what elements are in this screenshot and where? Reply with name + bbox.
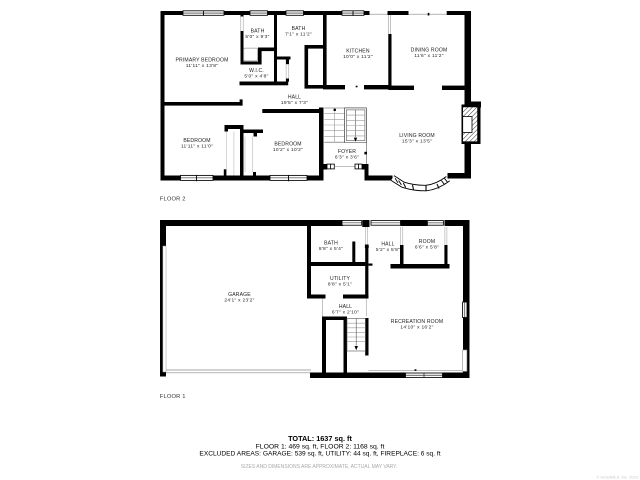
svg-text:5'0" x 4'8": 5'0" x 4'8": [244, 73, 268, 79]
svg-text:5'2" x 5'8": 5'2" x 5'8": [376, 247, 400, 253]
svg-text:11'6" x 11'2": 11'6" x 11'2": [414, 53, 444, 59]
svg-text:SIZES AND DIMENSIONS ARE APPRO: SIZES AND DIMENSIONS ARE APPROXIMATE, AC…: [241, 464, 398, 470]
svg-text:BATH: BATH: [324, 240, 338, 246]
svg-text:11'11" x 13'8": 11'11" x 13'8": [186, 63, 218, 69]
svg-text:RECREATION ROOM: RECREATION ROOM: [391, 319, 444, 325]
svg-text:PRIMARY BEDROOM: PRIMARY BEDROOM: [175, 57, 228, 63]
svg-text:BEDROOM: BEDROOM: [183, 138, 210, 144]
svg-text:KITCHEN: KITCHEN: [346, 48, 370, 54]
svg-text:TOTAL: 1637 sq. ft: TOTAL: 1637 sq. ft: [288, 434, 352, 443]
svg-text:HALL: HALL: [381, 242, 394, 248]
svg-text:15'3" x 13'5": 15'3" x 13'5": [402, 138, 432, 144]
svg-text:HALL: HALL: [339, 304, 352, 310]
svg-text:11'11" x 11'0": 11'11" x 11'0": [181, 144, 213, 150]
svg-text:8'8" x 5'1": 8'8" x 5'1": [328, 282, 352, 288]
svg-text:BEDROOM: BEDROOM: [274, 142, 301, 148]
svg-text:14'10" x 16'2": 14'10" x 16'2": [400, 325, 433, 331]
svg-text:19'5" x 7'3": 19'5" x 7'3": [281, 100, 308, 106]
svg-text:DINING ROOM: DINING ROOM: [411, 47, 448, 53]
svg-text:6'7" x 2'10": 6'7" x 2'10": [332, 310, 359, 316]
svg-text:7'1" x 11'2": 7'1" x 11'2": [285, 32, 312, 38]
svg-text:24'1" x 23'2": 24'1" x 23'2": [224, 297, 254, 303]
svg-text:BATH: BATH: [292, 26, 306, 32]
svg-text:10'0" x 11'2": 10'0" x 11'2": [343, 54, 373, 60]
svg-text:EXCLUDED AREAS: GARAGE: 539 sq: EXCLUDED AREAS: GARAGE: 539 sq. ft, UTIL…: [199, 451, 440, 458]
svg-text:FOYER: FOYER: [338, 149, 356, 155]
svg-text:8'8" x 5'4": 8'8" x 5'4": [319, 246, 343, 252]
svg-text:GARAGE: GARAGE: [228, 292, 251, 298]
svg-text:UTILITY: UTILITY: [330, 276, 350, 282]
svg-text:LIVING ROOM: LIVING ROOM: [399, 133, 435, 139]
svg-text:10'2" x 10'2": 10'2" x 10'2": [273, 147, 303, 153]
svg-text:5'0" x 9'3": 5'0" x 9'3": [245, 34, 269, 40]
svg-text:6'3" x 3'6": 6'3" x 3'6": [335, 155, 359, 161]
svg-text:6'6" x 5'8": 6'6" x 5'8": [415, 244, 439, 250]
svg-text:W.I.C.: W.I.C.: [249, 68, 264, 74]
svg-text:FLOOR 2: FLOOR 2: [160, 197, 186, 203]
svg-text:ROOM: ROOM: [419, 239, 435, 245]
svg-text:BATH: BATH: [251, 28, 265, 34]
svg-text:HALL: HALL: [288, 95, 301, 101]
svg-text:© SmartMLS, Inc. 2023: © SmartMLS, Inc. 2023: [596, 475, 638, 480]
svg-text:FLOOR 1: FLOOR 1: [160, 394, 186, 400]
svg-text:FLOOR 1: 469 sq. ft, FLOOR 2:: FLOOR 1: 469 sq. ft, FLOOR 2: 1168 sq. f…: [256, 444, 385, 451]
